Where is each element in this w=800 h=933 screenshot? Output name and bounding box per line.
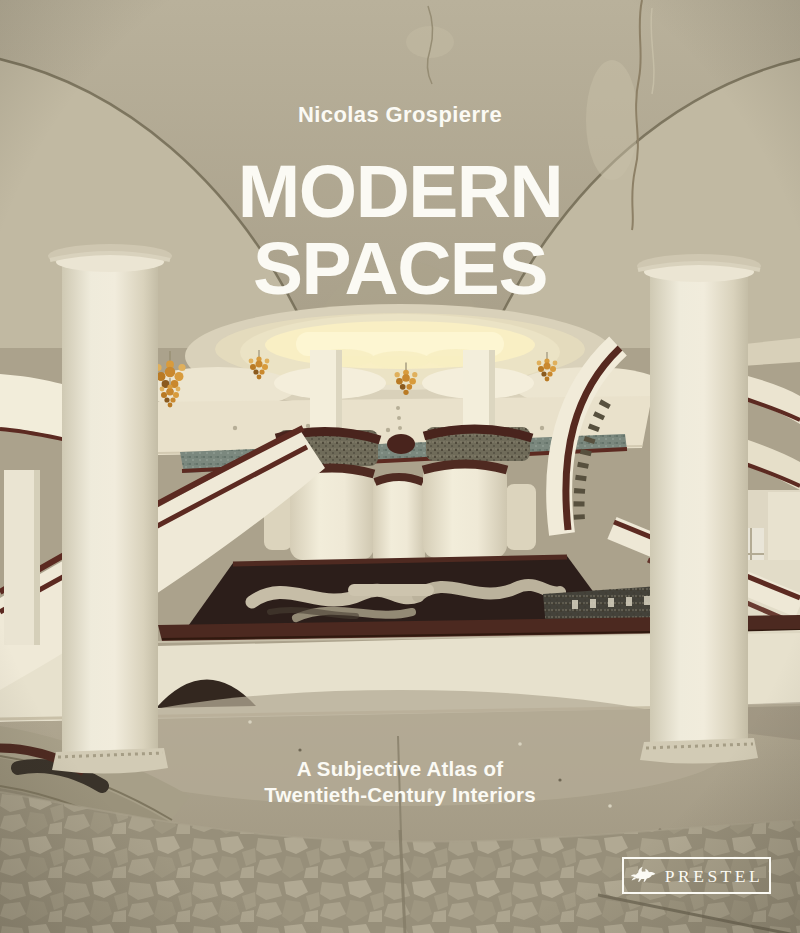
book-title: MODERN SPACES xyxy=(0,153,800,307)
subtitle-line-2: Twentieth-Century Interiors xyxy=(264,783,536,806)
subtitle-line-1: A Subjective Atlas of xyxy=(297,757,504,780)
book-cover: Nicolas Grospierre MODERN SPACES A Subje… xyxy=(0,0,800,933)
author-name: Nicolas Grospierre xyxy=(0,102,800,128)
pegasus-icon xyxy=(630,866,657,885)
book-subtitle: A Subjective Atlas of Twentieth-Century … xyxy=(0,756,800,808)
publisher-logo: PRESTEL xyxy=(622,857,771,894)
title-line-1: MODERN xyxy=(238,149,562,233)
publisher-name: PRESTEL xyxy=(665,866,763,887)
title-line-2: SPACES xyxy=(253,226,547,310)
